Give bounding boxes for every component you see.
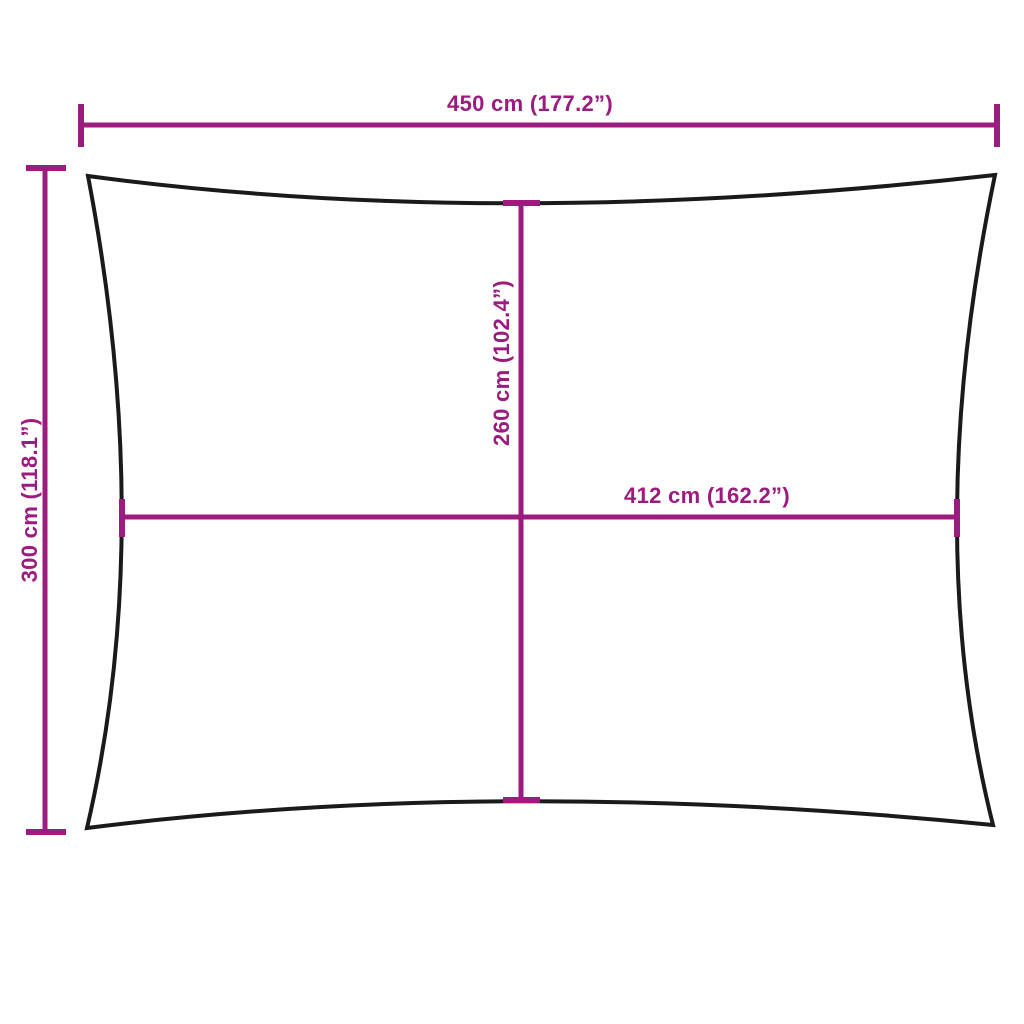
- dimension-label-inner-height: 260 cm (102.4”): [489, 280, 514, 446]
- dimension-label-top-width: 450 cm (177.2”): [447, 91, 613, 116]
- dimension-left-height: 300 cm (118.1”): [17, 168, 66, 832]
- sail-outline-shape: [87, 175, 995, 828]
- dimension-inner-width: 412 cm (162.2”): [122, 483, 957, 537]
- dimension-diagram-canvas: 450 cm (177.2”) 300 cm (118.1”) 260 cm (…: [0, 0, 1024, 1024]
- dimension-label-inner-width: 412 cm (162.2”): [624, 483, 790, 508]
- dimension-diagram: 450 cm (177.2”) 300 cm (118.1”) 260 cm (…: [0, 0, 1024, 1024]
- dimension-inner-height: 260 cm (102.4”): [489, 203, 540, 800]
- dimension-label-left-height: 300 cm (118.1”): [17, 418, 42, 583]
- dimension-top-width: 450 cm (177.2”): [81, 91, 997, 147]
